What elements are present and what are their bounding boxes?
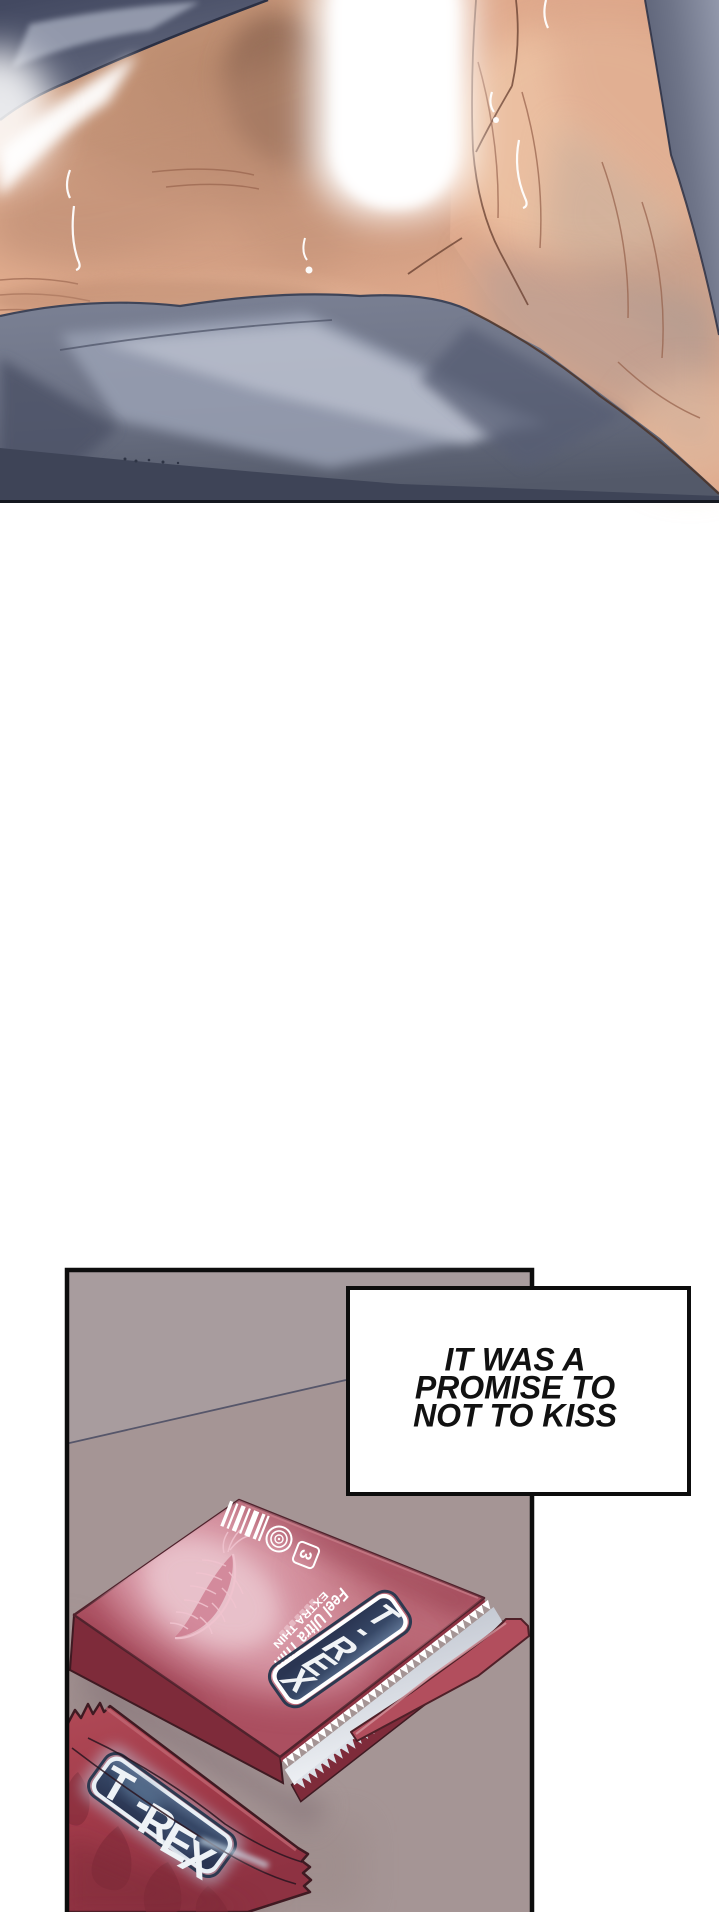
svg-text:NOT TO KISS: NOT TO KISS xyxy=(413,1398,618,1434)
